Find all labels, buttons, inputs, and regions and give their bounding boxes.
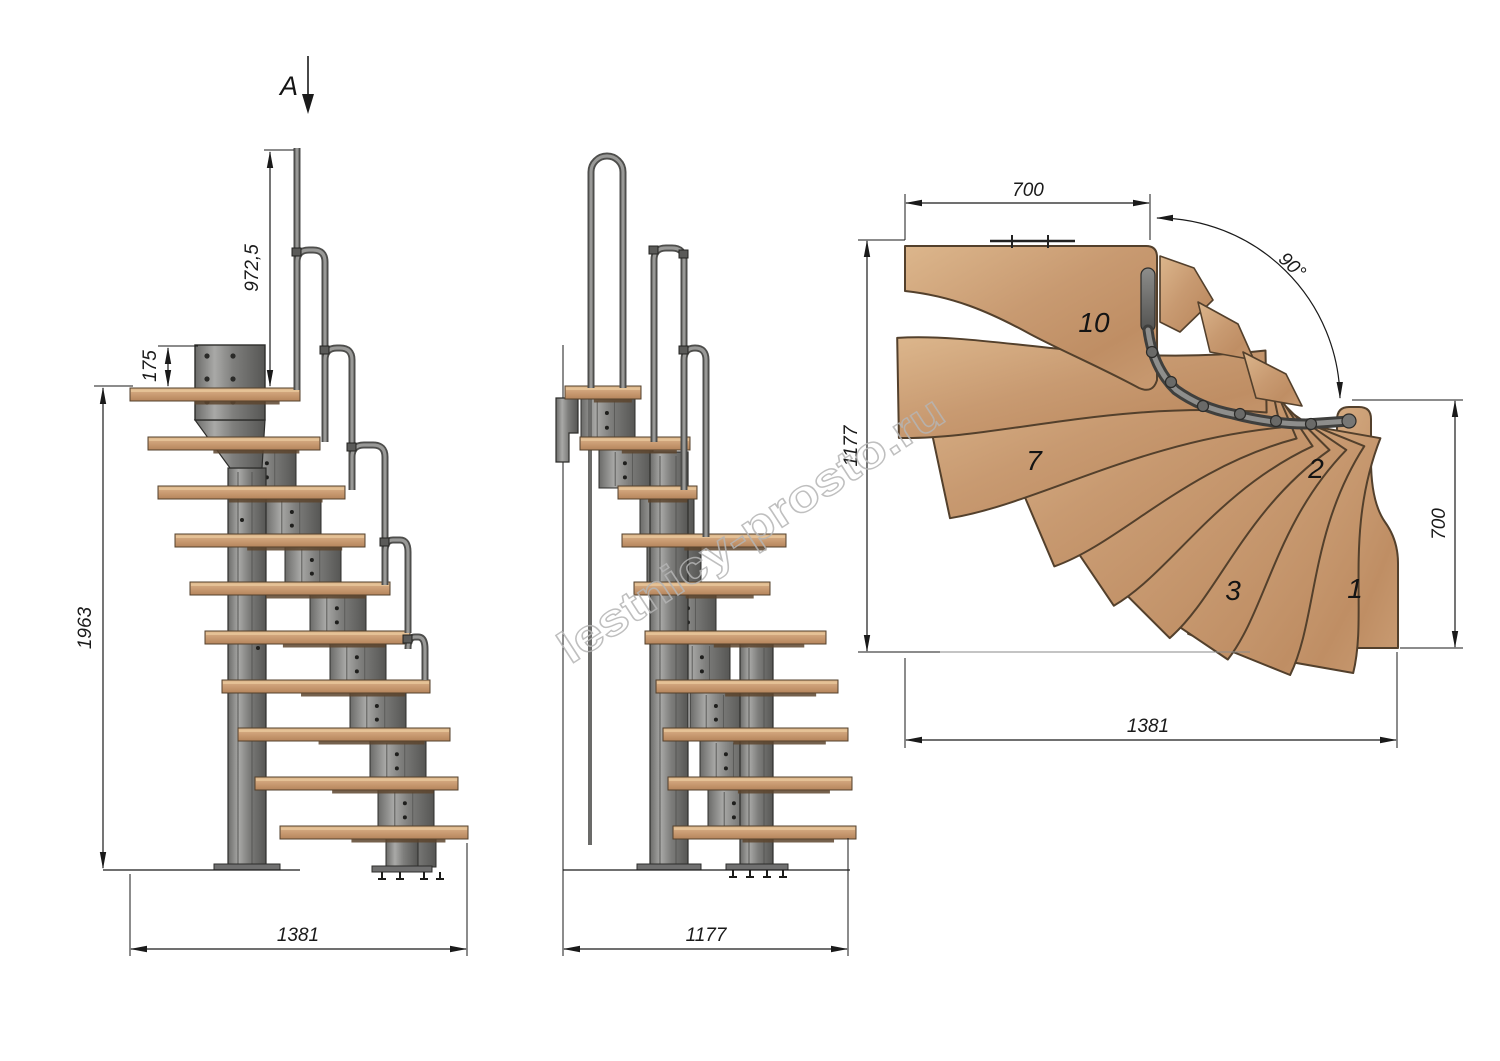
section-letter: A (278, 71, 298, 101)
dimension-label: 972,5 (242, 244, 263, 292)
step-number: 10 (1078, 307, 1110, 338)
dimension-label: 700 (1429, 508, 1450, 540)
step-number: 1 (1347, 573, 1363, 604)
step-number: 7 (1026, 445, 1043, 476)
dimension-label: 1963 (75, 606, 96, 649)
dimension-label: 1177 (686, 925, 728, 946)
step-number: 2 (1307, 453, 1324, 484)
dimension-label: 1381 (1127, 716, 1169, 737)
dimension-label: 1381 (277, 925, 319, 946)
step-number: 3 (1225, 575, 1241, 606)
dimension-label: 700 (1012, 180, 1044, 201)
staircase-drawing-canvas: A972,517519631381117710723170090°1177700… (0, 0, 1500, 1061)
technical-drawing-modular-staircase: A972,517519631381117710723170090°1177700… (0, 0, 1500, 1061)
dimension-label: 175 (140, 350, 161, 382)
wall-mount-plate (195, 345, 265, 420)
